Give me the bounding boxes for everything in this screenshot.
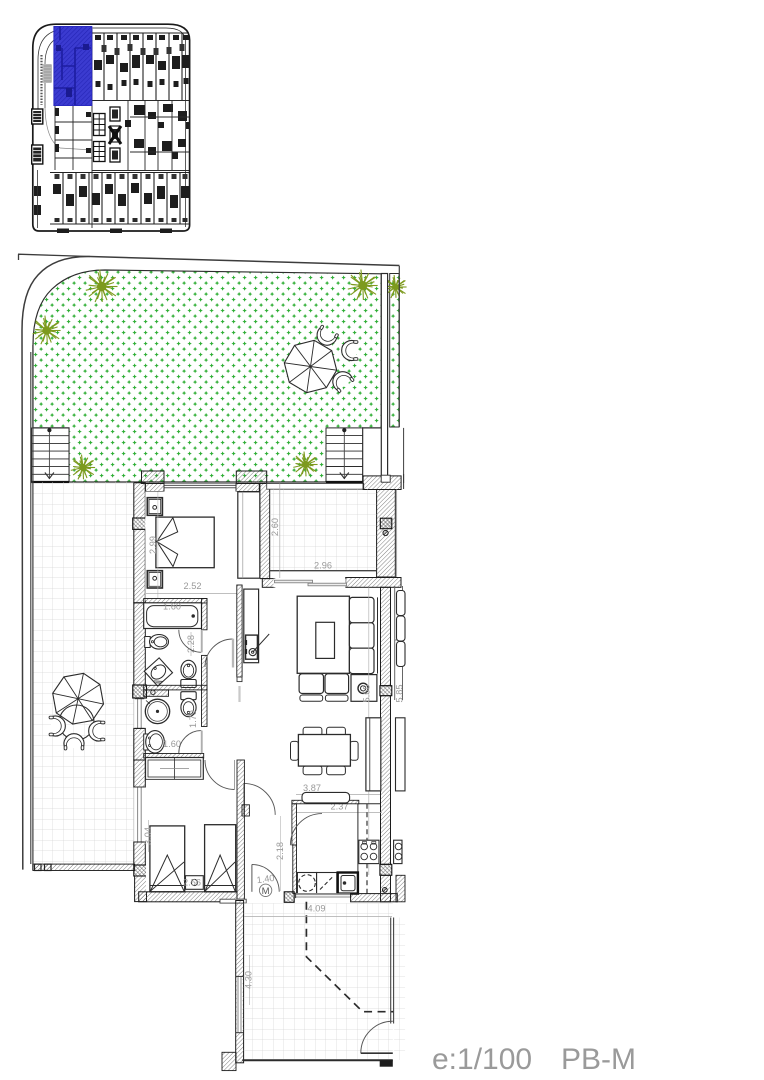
svg-text:2.96: 2.96: [314, 561, 332, 571]
svg-text:3.04: 3.04: [143, 827, 153, 845]
svg-text:1.79: 1.79: [188, 710, 198, 728]
svg-text:1.60: 1.60: [163, 602, 181, 612]
svg-text:2.18: 2.18: [275, 842, 285, 860]
svg-text:2.52: 2.52: [184, 581, 202, 591]
svg-text:1.60: 1.60: [163, 739, 181, 749]
svg-text:5.65: 5.65: [362, 685, 372, 703]
svg-text:PB-M: PB-M: [561, 1043, 636, 1076]
svg-text:2.99: 2.99: [148, 536, 158, 554]
svg-text:4.30: 4.30: [243, 971, 253, 989]
svg-text:3.87: 3.87: [303, 783, 321, 793]
svg-text:4.09: 4.09: [308, 904, 326, 914]
svg-text:2.60: 2.60: [270, 518, 280, 536]
svg-text:2.56: 2.56: [183, 878, 201, 888]
svg-text:M: M: [262, 886, 270, 897]
svg-text:e:1/100: e:1/100: [432, 1043, 532, 1076]
